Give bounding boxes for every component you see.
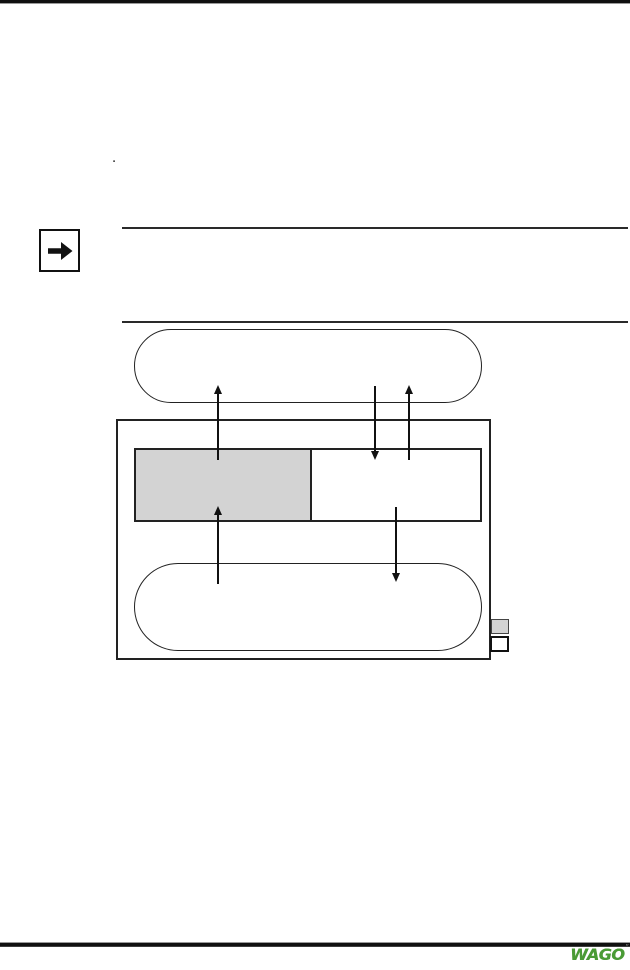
registered-mark: ” bbox=[625, 943, 629, 951]
arrow-up-icon bbox=[213, 385, 223, 460]
top-stadium bbox=[134, 329, 482, 403]
wago-logo: WAGO” bbox=[548, 945, 628, 967]
arrow-down-icon bbox=[370, 386, 380, 460]
split-box bbox=[134, 448, 482, 522]
legend-white-square bbox=[490, 636, 509, 652]
legend-gray-square bbox=[491, 619, 509, 634]
split-box-left-gray bbox=[136, 450, 312, 520]
arrow-down-icon bbox=[391, 507, 401, 582]
bottom-stadium bbox=[134, 563, 482, 651]
bottom-rule bbox=[0, 941, 630, 947]
diagram bbox=[0, 0, 630, 970]
arrow-up-icon bbox=[404, 385, 414, 460]
page: . WAGO” bbox=[0, 0, 630, 970]
arrow-up-icon bbox=[213, 506, 223, 584]
wago-logo-text: WAGO bbox=[570, 945, 624, 964]
